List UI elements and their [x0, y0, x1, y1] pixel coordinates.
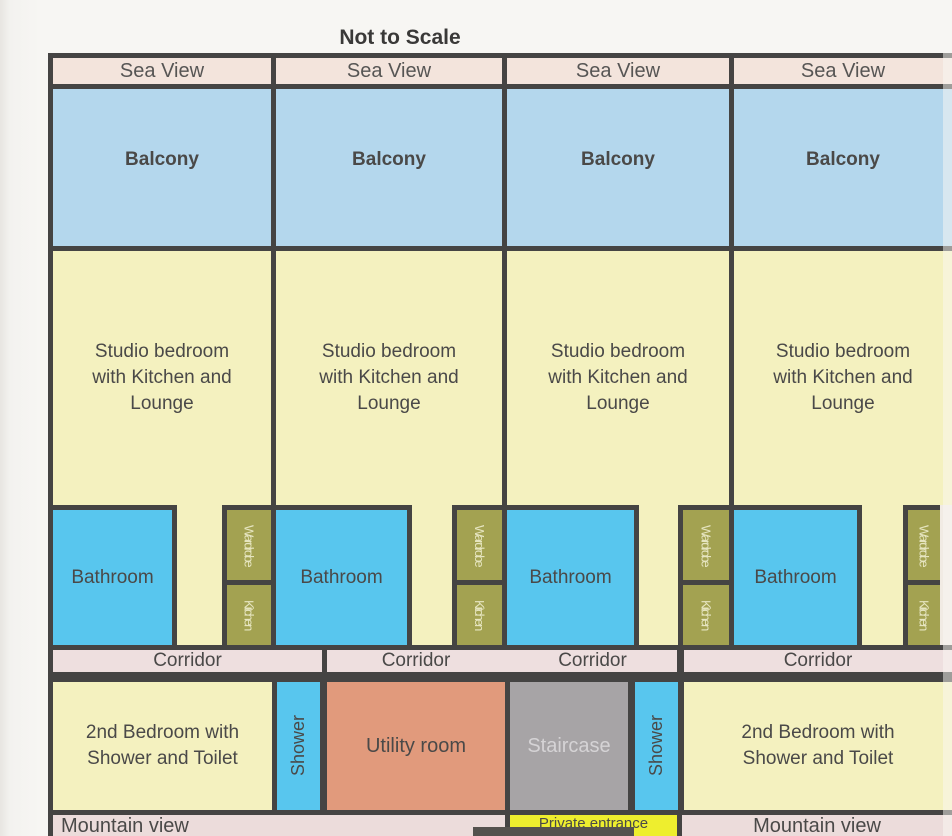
mountain-view-right: Mountain view: [682, 815, 952, 836]
unit-1-wardrobe: Wardrobe: [227, 510, 271, 580]
unit-2-kitchen-label: Kitchen: [472, 600, 487, 629]
unit-1-passage: [177, 505, 222, 645]
unit-4-kitchen-label: Kitchen: [917, 600, 932, 629]
unit-2-studio-line-3: Lounge: [319, 391, 458, 417]
unit-1-studio-line-2: with Kitchen and: [92, 365, 231, 391]
unit-3-balcony: Balcony: [507, 89, 729, 246]
unit-4-wardrobe-label: Wardrobe: [917, 525, 932, 566]
unit-4-studio-line-2: with Kitchen and: [773, 365, 912, 391]
unit-2-kitchen: Kitchen: [457, 585, 502, 645]
scan-edge-fade: [943, 53, 952, 836]
unit-3-bathroom: Bathroom: [507, 510, 634, 645]
page-title: Not to Scale: [300, 26, 500, 50]
unit-4-studio-line-1: Studio bedroom: [773, 339, 912, 365]
unit-1-studio-line-3: Lounge: [92, 391, 231, 417]
utility-room: Utility room: [327, 682, 505, 810]
second-bedroom-left: 2nd Bedroom with Shower and Toilet: [53, 682, 272, 810]
second-bedroom-right-line-1: 2nd Bedroom with: [741, 720, 894, 746]
mountain-view-left: Mountain view: [53, 815, 505, 836]
second-bedroom-right-line-2: Shower and Toilet: [741, 746, 894, 772]
unit-1-bathroom: Bathroom: [53, 510, 172, 645]
unit-4-wardrobe: Wardrobe: [908, 510, 940, 580]
unit-3-studio-line-1: Studio bedroom: [548, 339, 687, 365]
unit-1-sea-view-label: Sea View: [53, 58, 271, 84]
scan-shadow-artifact: [473, 827, 634, 836]
unit-4-balcony: Balcony: [734, 89, 952, 246]
staircase: Staircase: [510, 682, 628, 810]
second-bedroom-left-line-1: 2nd Bedroom with: [86, 720, 239, 746]
unit-2-wardrobe: Wardrobe: [457, 510, 502, 580]
unit-1-studio-room: Studio bedroom with Kitchen and Lounge: [53, 251, 271, 505]
unit-1-studio-line-1: Studio bedroom: [92, 339, 231, 365]
shower-right-label: Shower: [646, 715, 667, 776]
second-bedroom-left-line-2: Shower and Toilet: [86, 746, 239, 772]
unit-2-sea-view-label: Sea View: [276, 58, 502, 84]
unit-3-kitchen-label: Kitchen: [699, 600, 714, 629]
unit-2-balcony: Balcony: [276, 89, 502, 246]
second-bedroom-right: 2nd Bedroom with Shower and Toilet: [684, 682, 952, 810]
unit-3-wardrobe-label: Wardrobe: [699, 525, 714, 566]
unit-4-bathroom: Bathroom: [734, 510, 857, 645]
unit-3-sea-view-label: Sea View: [507, 58, 729, 84]
unit-1-balcony: Balcony: [53, 89, 271, 246]
unit-4-sea-view-label: Sea View: [734, 58, 952, 84]
unit-1-kitchen: Kitchen: [227, 585, 271, 645]
unit-4-studio-line-3: Lounge: [773, 391, 912, 417]
unit-1-kitchen-label: Kitchen: [242, 600, 257, 629]
unit-2-studio-line-1: Studio bedroom: [319, 339, 458, 365]
unit-2-studio-room: Studio bedroom with Kitchen and Lounge: [276, 251, 502, 505]
corridor-segment-2: Corridor Corridor: [327, 650, 677, 672]
unit-4-kitchen: Kitchen: [908, 585, 940, 645]
floor-plan-scan: Not to Scale Sea View Balcony Studio bed…: [0, 0, 952, 836]
shower-right: Shower: [635, 682, 678, 810]
unit-2-studio-line-2: with Kitchen and: [319, 365, 458, 391]
corridor-label-staircase: Corridor: [508, 650, 677, 672]
unit-4-passage: [862, 505, 903, 645]
unit-2-bathroom: Bathroom: [276, 510, 407, 645]
unit-4-studio-room: Studio bedroom with Kitchen and Lounge: [734, 251, 952, 505]
shower-left-label: Shower: [288, 715, 309, 776]
unit-1-wardrobe-label: Wardrobe: [242, 525, 257, 566]
corridor-segment-3: Corridor: [684, 650, 952, 672]
unit-2-passage: [412, 505, 452, 645]
unit-3-kitchen: Kitchen: [683, 585, 729, 645]
unit-2-wardrobe-label: Wardrobe: [472, 525, 487, 566]
unit-3-studio-line-3: Lounge: [548, 391, 687, 417]
unit-3-studio-line-2: with Kitchen and: [548, 365, 687, 391]
corridor-segment-1: Corridor: [53, 650, 322, 672]
unit-3-studio-room: Studio bedroom with Kitchen and Lounge: [507, 251, 729, 505]
corridor-label-utility: Corridor: [327, 650, 505, 672]
unit-3-passage: [639, 505, 678, 645]
unit-3-wardrobe: Wardrobe: [683, 510, 729, 580]
shower-left: Shower: [277, 682, 320, 810]
